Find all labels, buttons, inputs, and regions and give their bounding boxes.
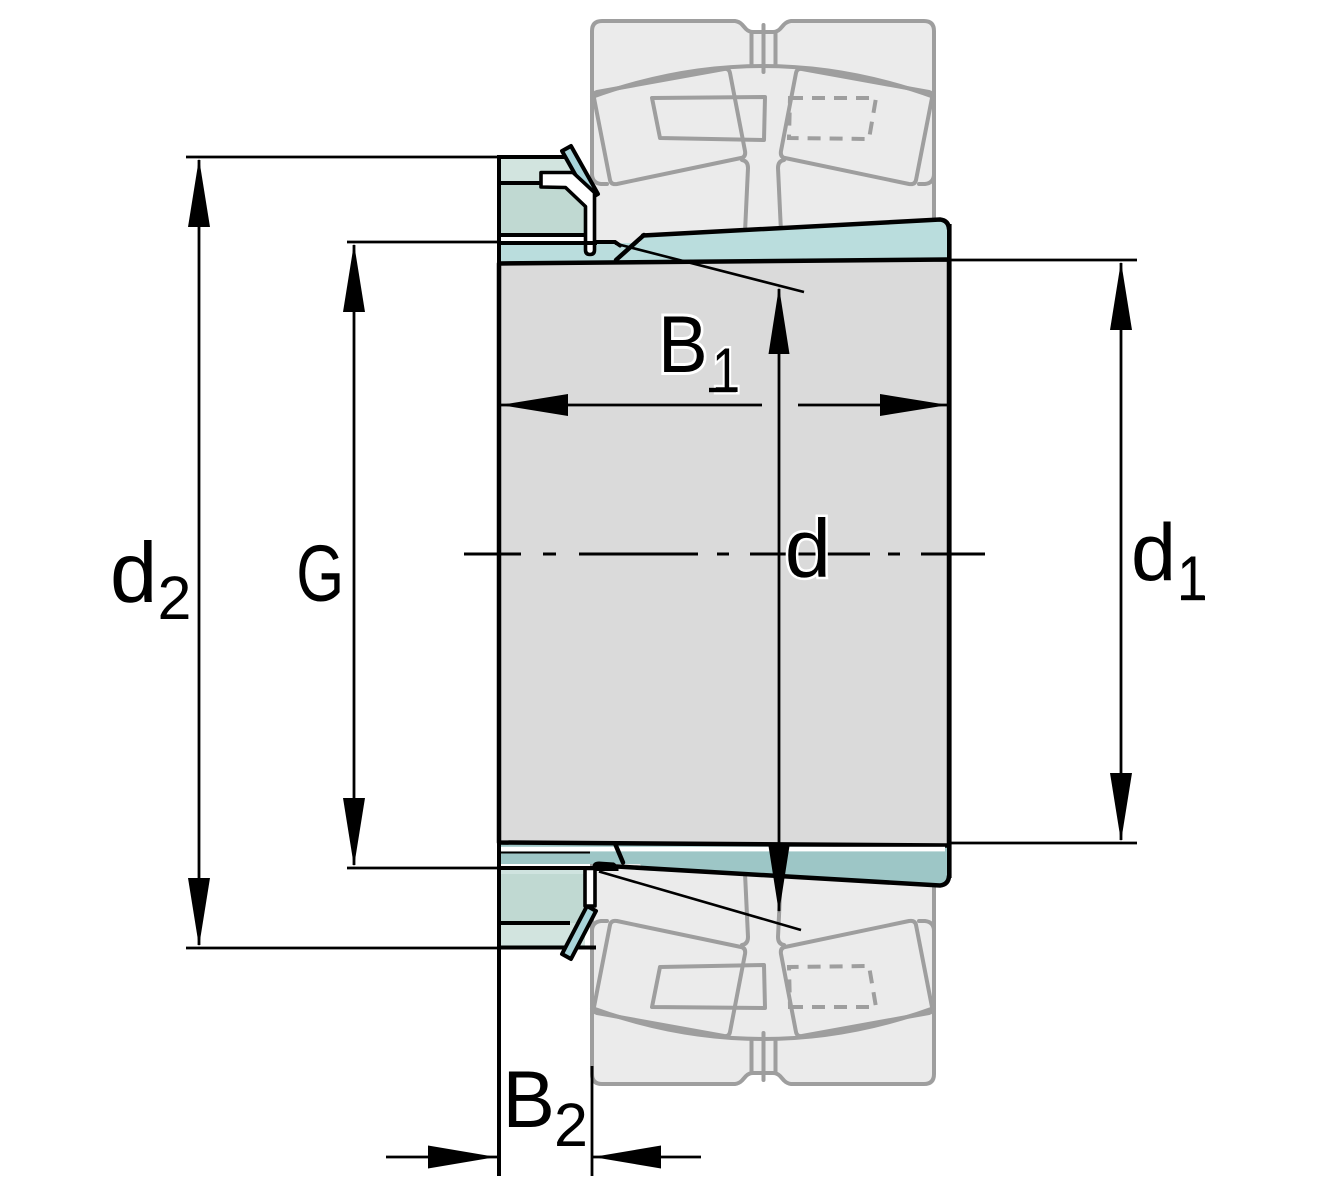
svg-text:G: G bbox=[296, 529, 344, 619]
svg-text:1: 1 bbox=[712, 336, 740, 407]
svg-text:B: B bbox=[503, 1054, 555, 1144]
svg-text:d: d bbox=[785, 502, 831, 595]
svg-text:B: B bbox=[658, 300, 708, 390]
svg-text:d: d bbox=[110, 526, 157, 621]
svg-text:2: 2 bbox=[158, 564, 192, 632]
svg-text:2: 2 bbox=[554, 1091, 588, 1159]
svg-text:1: 1 bbox=[1177, 544, 1207, 614]
svg-text:d: d bbox=[1131, 508, 1176, 598]
